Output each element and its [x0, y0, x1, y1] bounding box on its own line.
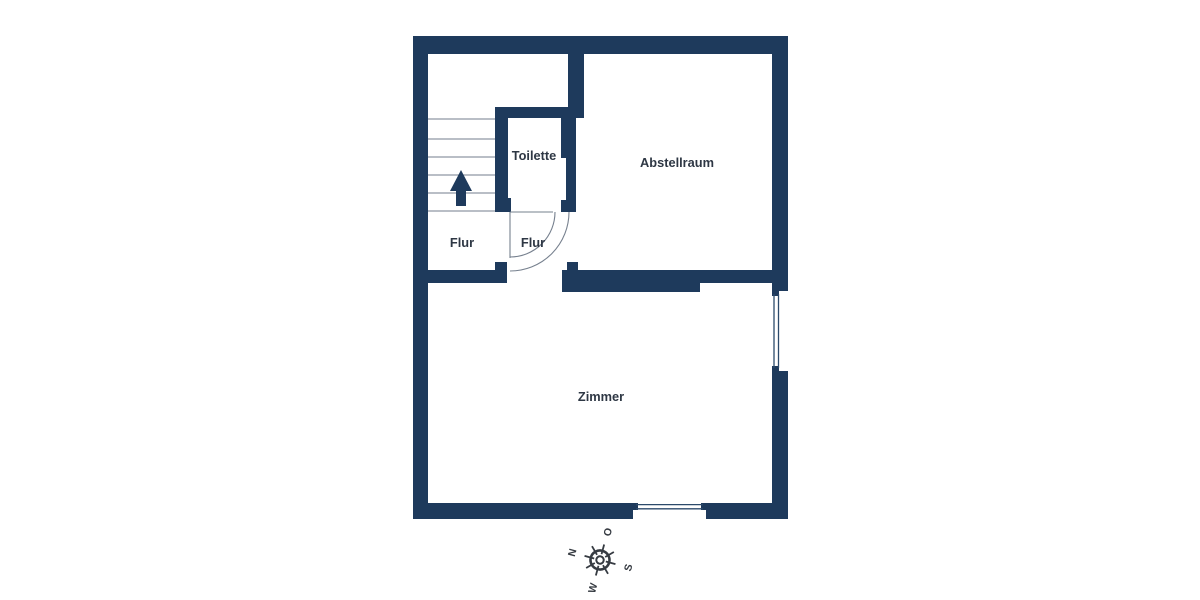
compass-label-south: S: [622, 563, 635, 573]
room-label-abstellraum: Abstellraum: [640, 155, 714, 170]
wall-toilette-right-upper: [561, 118, 576, 158]
wall-toilette-right-stub: [561, 200, 576, 212]
wall-right-upper: [772, 36, 788, 291]
compass-rose-icon: N O S W: [558, 519, 643, 600]
compass-wheel-hub: [595, 555, 604, 564]
wall-zimmer-door-jamb: [567, 262, 578, 270]
wall-left: [413, 36, 428, 519]
compass-spokes: [580, 540, 619, 579]
interior-walls: [428, 54, 772, 292]
compass-wheel-ring: [588, 548, 611, 571]
wall-top: [413, 36, 788, 54]
wall-right-lower: [772, 371, 788, 519]
wall-toilette-top: [495, 107, 584, 118]
wall-bottom-left: [413, 503, 633, 519]
wall-flur-door-jamb: [495, 262, 507, 270]
wall-toilette-left: [495, 118, 508, 200]
bottom-wall-window: [633, 503, 706, 510]
floorplan-page: Toilette Abstellraum Flur Flur Zimmer N …: [0, 0, 1200, 600]
wall-zimmer-top-thick: [562, 270, 700, 292]
room-label-flur-right: Flur: [521, 235, 545, 250]
room-label-flur-left: Flur: [450, 235, 474, 250]
right-wall-window: [772, 291, 779, 371]
compass-label-north: N: [566, 547, 580, 557]
room-label-zimmer: Zimmer: [578, 389, 624, 404]
wall-toilette-left-foot: [495, 198, 511, 212]
staircase: [428, 119, 495, 211]
wall-toilette-right-lower: [566, 158, 576, 200]
wall-flur-bottom: [428, 270, 507, 283]
floorplan-drawing: Toilette Abstellraum Flur Flur Zimmer N …: [0, 0, 1200, 600]
wall-bottom-right: [706, 503, 788, 519]
compass-label-west: W: [586, 582, 600, 595]
compass-label-east: O: [601, 527, 615, 538]
room-label-toilette: Toilette: [512, 148, 557, 163]
